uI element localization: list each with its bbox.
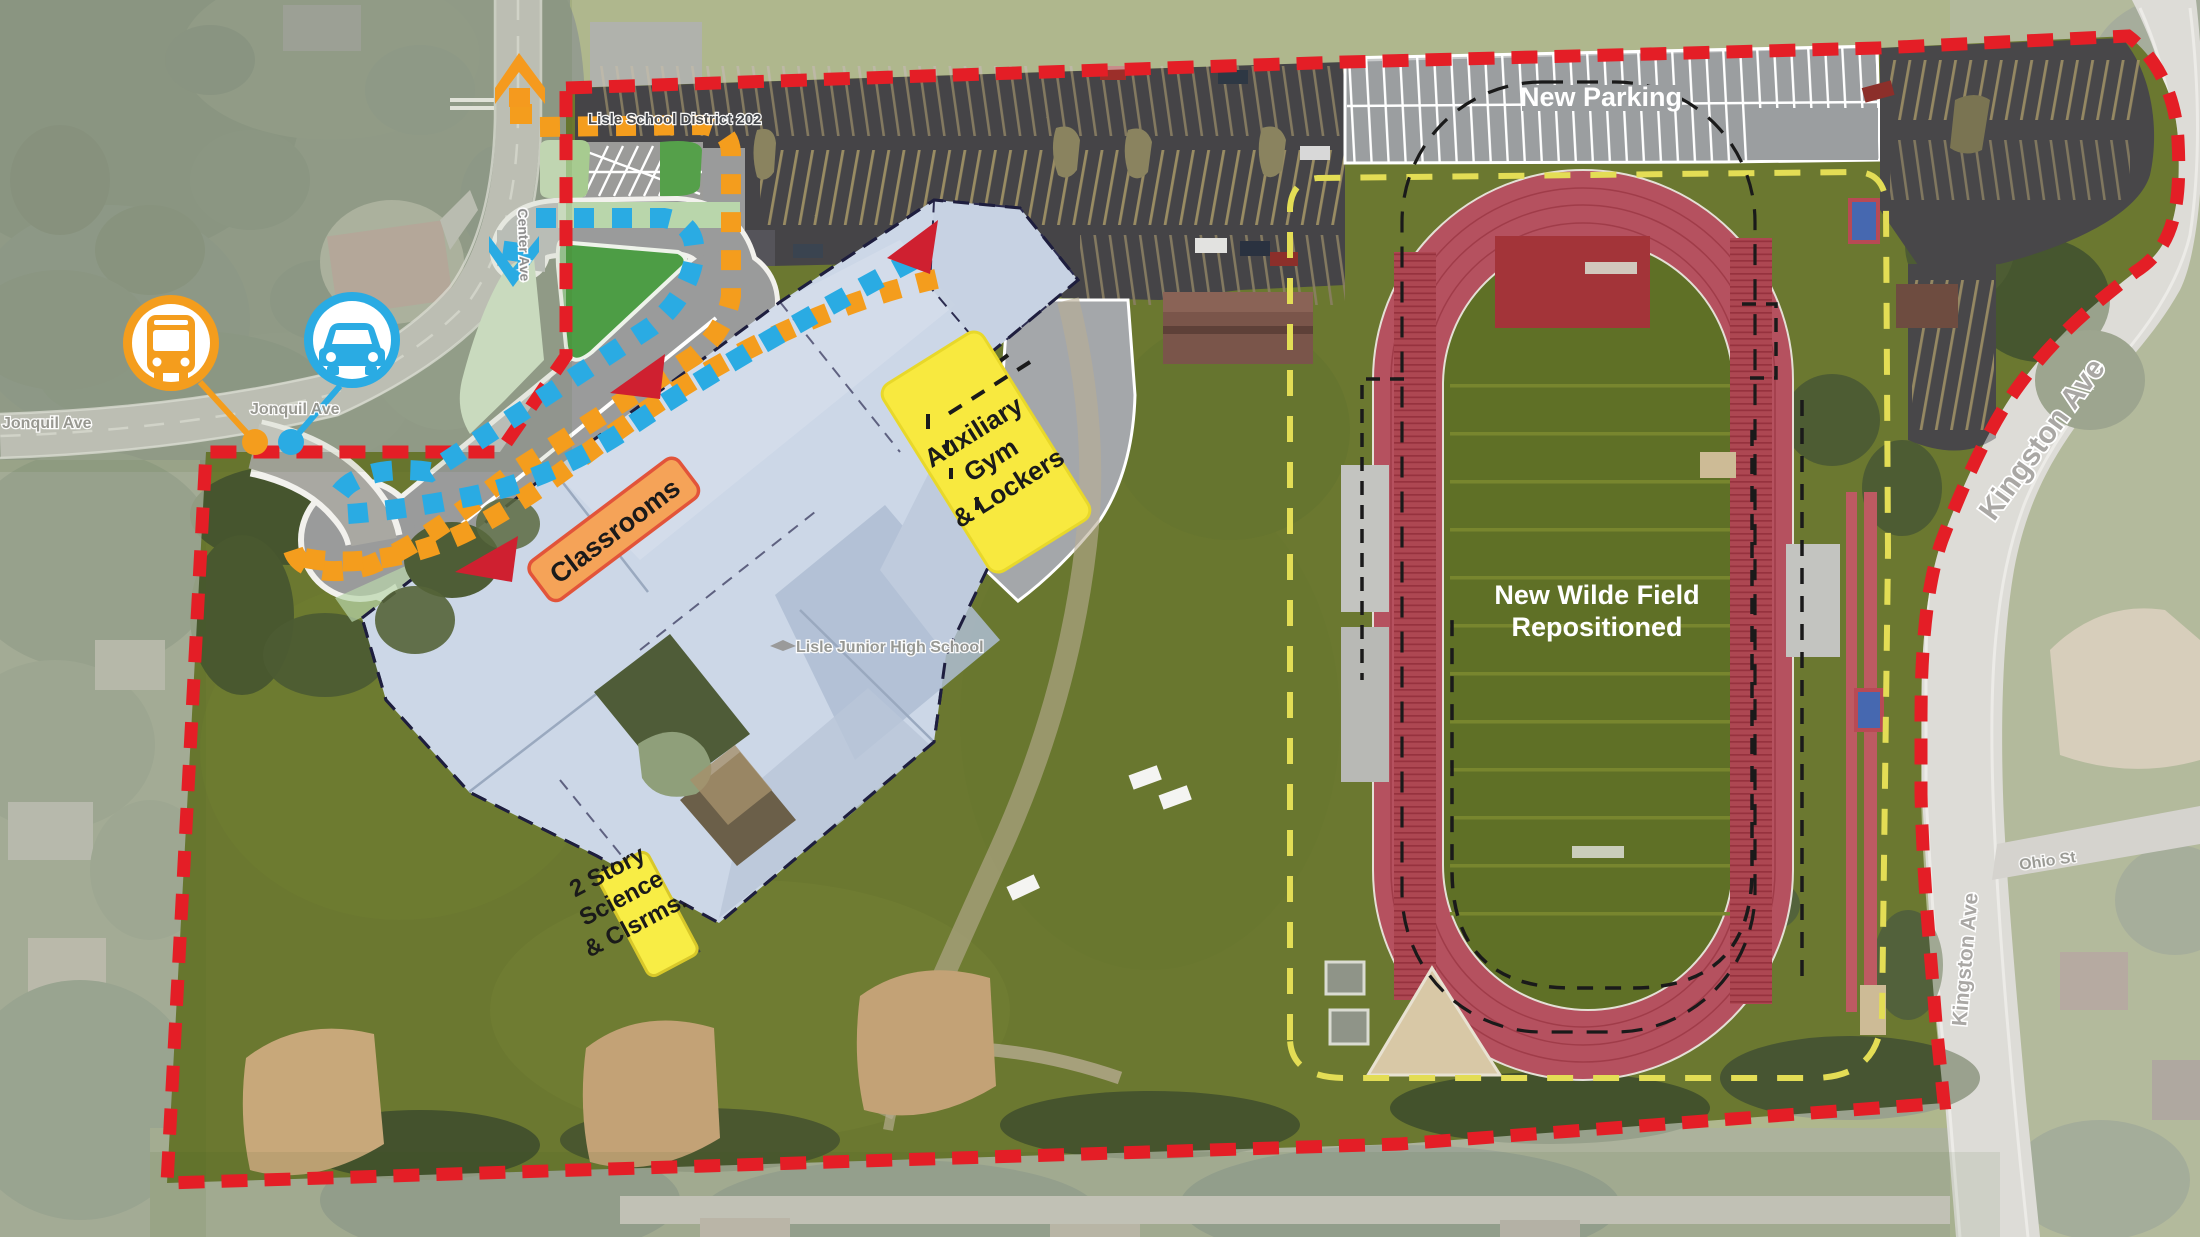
svg-text:Jonquil Ave: Jonquil Ave: [2, 415, 92, 432]
svg-text:Lisle School District 202: Lisle School District 202: [588, 111, 761, 128]
svg-text:New Wilde Field: New Wilde Field: [1494, 580, 1699, 610]
svg-text:Jonquil Ave: Jonquil Ave: [250, 401, 340, 418]
svg-text:Center Ave: Center Ave: [515, 208, 534, 282]
svg-text:Repositioned: Repositioned: [1511, 612, 1682, 642]
svg-text:New Parking: New Parking: [1520, 82, 1682, 112]
svg-text:Lisle Junior High School: Lisle Junior High School: [796, 639, 984, 656]
